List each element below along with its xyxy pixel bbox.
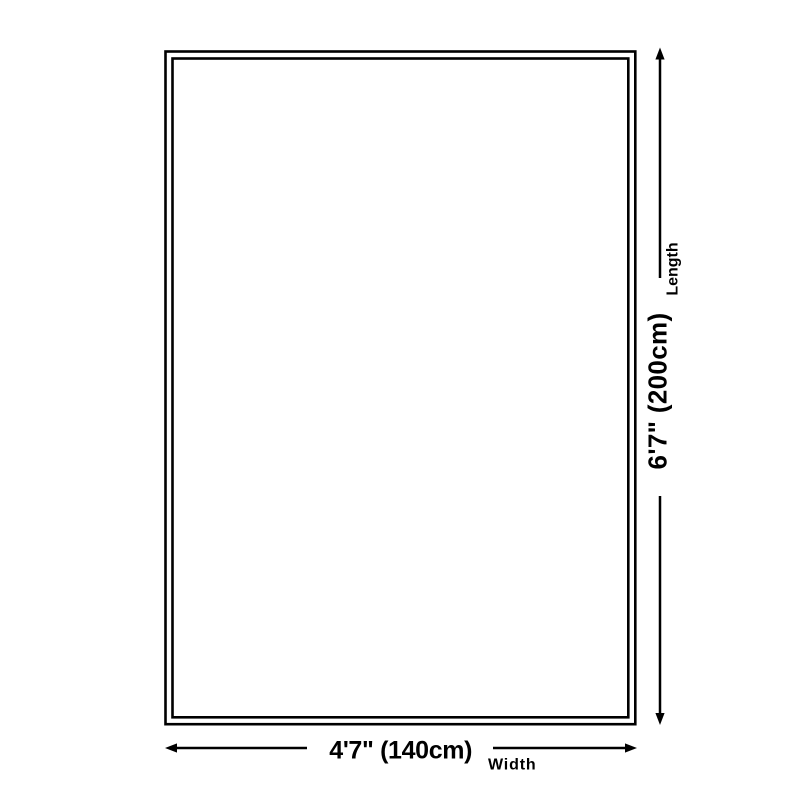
svg-text:Length: Length: [665, 242, 682, 295]
svg-text:4'7" (140cm): 4'7" (140cm): [329, 736, 472, 764]
svg-text:Width: Width: [488, 757, 537, 774]
svg-text:6'7" (200cm): 6'7" (200cm): [643, 313, 673, 470]
